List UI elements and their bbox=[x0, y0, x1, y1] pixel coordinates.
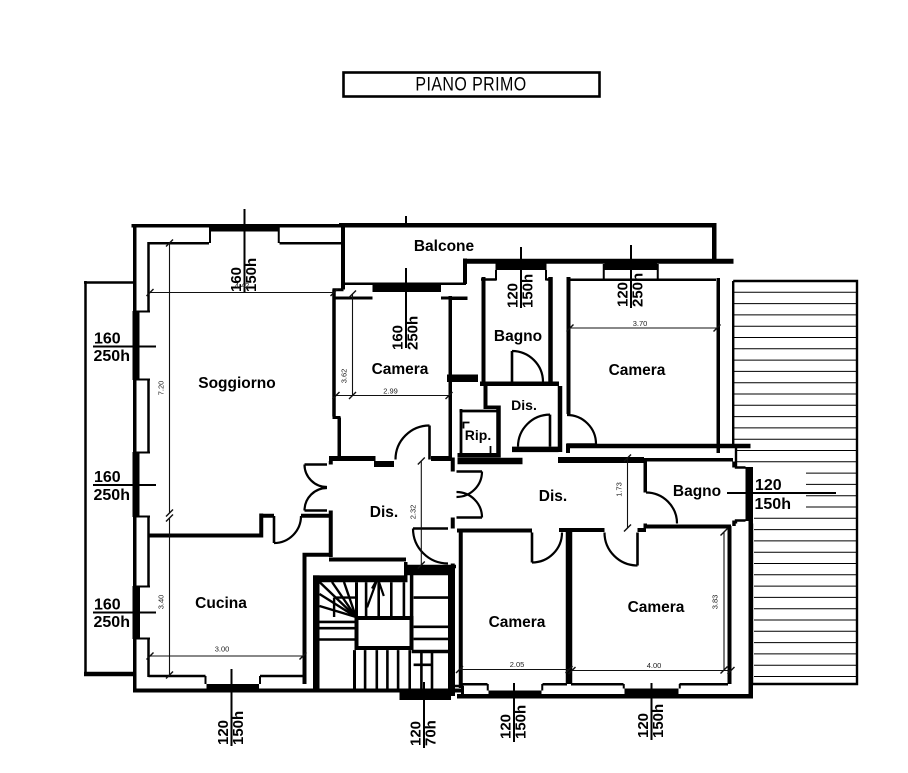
svg-text:2.05: 2.05 bbox=[510, 660, 525, 669]
svg-text:1.73: 1.73 bbox=[615, 482, 624, 497]
svg-text:160: 160 bbox=[94, 331, 121, 348]
svg-text:2.32: 2.32 bbox=[409, 505, 418, 520]
svg-text:Soggiorno: Soggiorno bbox=[198, 375, 276, 392]
svg-text:3.83: 3.83 bbox=[711, 595, 720, 610]
svg-text:70h: 70h bbox=[423, 720, 440, 746]
svg-text:Camera: Camera bbox=[609, 362, 666, 379]
svg-text:250h: 250h bbox=[630, 273, 647, 307]
svg-text:7.20: 7.20 bbox=[157, 381, 166, 396]
svg-text:250h: 250h bbox=[94, 487, 130, 504]
svg-text:150h: 150h bbox=[650, 704, 667, 738]
svg-text:3.62: 3.62 bbox=[340, 369, 349, 384]
svg-text:250h: 250h bbox=[94, 614, 130, 631]
svg-text:Bagno: Bagno bbox=[494, 328, 542, 345]
svg-text:250h: 250h bbox=[405, 316, 422, 350]
svg-text:Dis.: Dis. bbox=[370, 504, 398, 521]
svg-text:120: 120 bbox=[755, 477, 782, 494]
svg-text:Dis.: Dis. bbox=[539, 488, 567, 505]
svg-text:160: 160 bbox=[94, 469, 121, 486]
svg-text:2.99: 2.99 bbox=[383, 387, 398, 396]
svg-text:160: 160 bbox=[94, 597, 121, 614]
svg-text:4.00: 4.00 bbox=[647, 661, 662, 670]
svg-text:3.00: 3.00 bbox=[215, 645, 230, 654]
svg-text:Rip.: Rip. bbox=[465, 427, 491, 443]
svg-text:PIANO PRIMO: PIANO PRIMO bbox=[415, 73, 526, 95]
svg-text:Cucina: Cucina bbox=[195, 595, 247, 612]
svg-text:Bagno: Bagno bbox=[673, 483, 721, 500]
svg-text:150h: 150h bbox=[520, 274, 537, 308]
svg-text:3.70: 3.70 bbox=[633, 319, 648, 328]
svg-text:3.40: 3.40 bbox=[157, 595, 166, 610]
svg-text:Balcone: Balcone bbox=[414, 238, 475, 255]
svg-text:Dis.: Dis. bbox=[511, 397, 537, 413]
svg-text:150h: 150h bbox=[513, 705, 530, 739]
svg-text:250h: 250h bbox=[94, 348, 130, 365]
svg-text:Camera: Camera bbox=[628, 599, 685, 616]
svg-text:150h: 150h bbox=[230, 711, 247, 745]
svg-text:Camera: Camera bbox=[372, 361, 429, 378]
svg-text:Camera: Camera bbox=[489, 614, 546, 631]
svg-text:4.42: 4.42 bbox=[235, 281, 250, 290]
svg-text:150h: 150h bbox=[755, 496, 791, 513]
